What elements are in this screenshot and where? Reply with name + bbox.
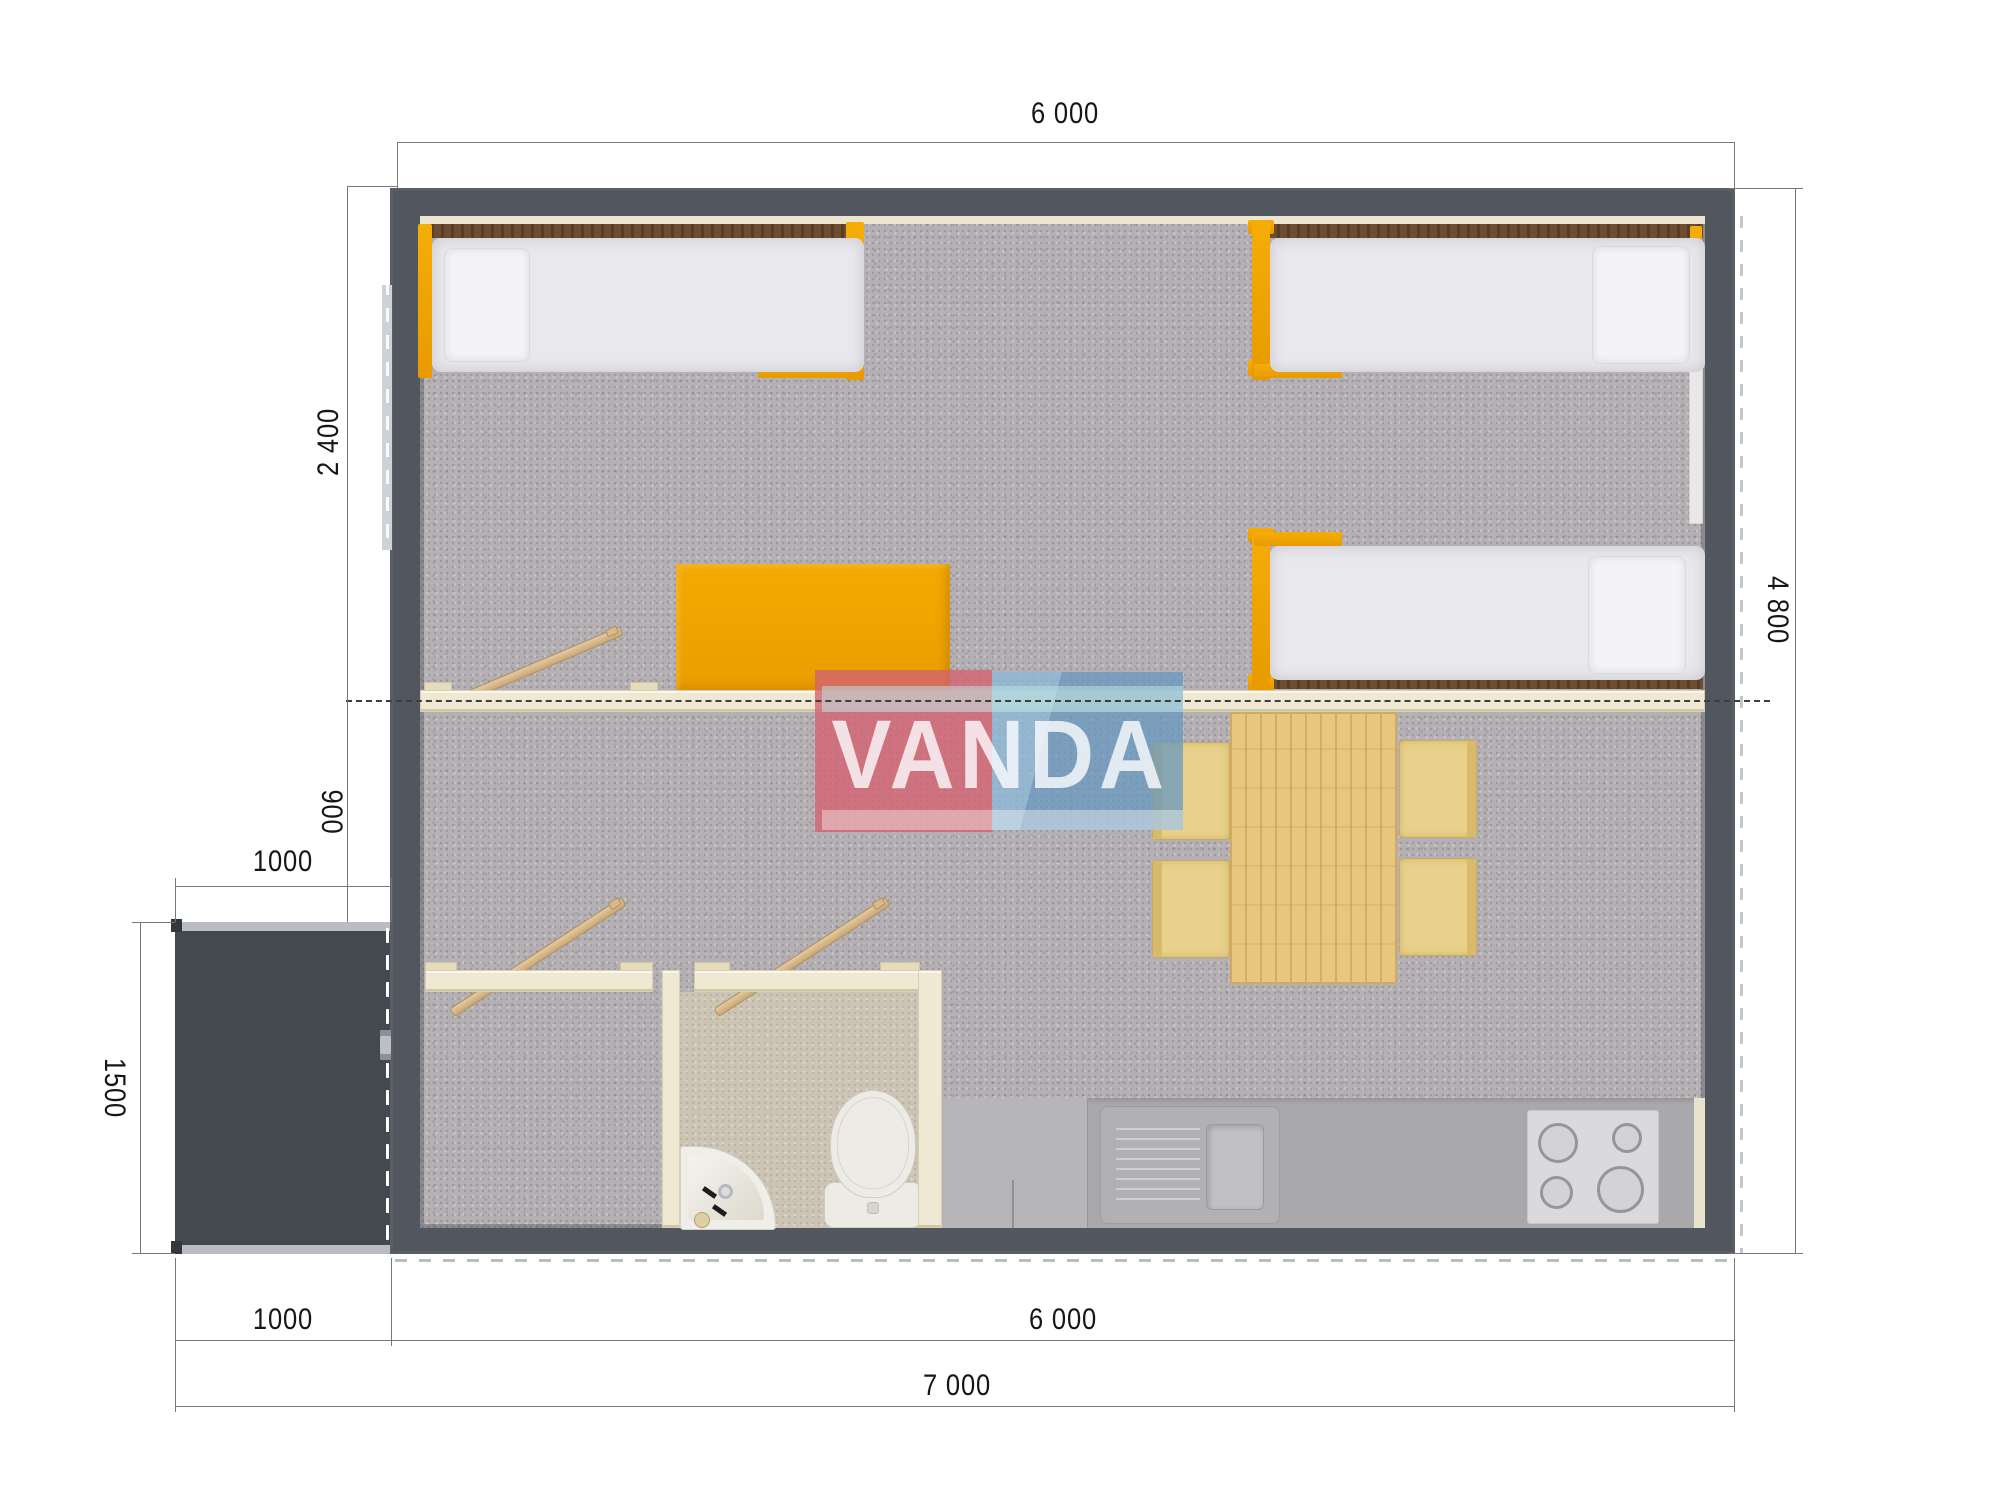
drainboard-line [1116,1198,1200,1200]
watermark: VANDA [815,668,1185,834]
dimension-extension [1734,1258,1735,1412]
stove-burner [1612,1123,1642,1153]
cladding-dashes-right [1740,216,1743,1254]
toilet-button [867,1202,879,1214]
dimension-line [175,1340,1735,1341]
dimension-extension [391,1258,392,1346]
floor-plan: VANDA 6 000 2 400 900 1000 1500 4 800 10… [0,0,2000,1502]
dimension-line [397,142,1735,143]
drainboard-line [1116,1168,1200,1170]
bathroom-front-wall [694,970,920,992]
dimension-extension [1734,142,1735,188]
wall-trim [420,216,1705,224]
chair [1152,860,1230,958]
pillow [1588,556,1686,674]
bed-frame-rail [1252,222,1270,380]
dining-table [1230,712,1397,984]
kitchen-cabinet [942,1098,1088,1228]
watermark-ribbon-bottom [822,810,1183,830]
dimension-line [1795,188,1796,1254]
porch-post [171,919,182,932]
dimension-line [175,886,392,887]
faucet-icon [718,1184,733,1199]
bathroom-right-wall [918,970,942,1228]
cabinet-divider [1012,1180,1014,1228]
door-handle [380,1030,391,1060]
stove-burner [1538,1123,1578,1163]
porch-step-top [175,922,390,931]
dimension-extension [175,1258,176,1412]
stove-burner [1540,1176,1573,1209]
dim-top-width: 6 000 [1031,97,1099,131]
dimension-extension [397,142,398,188]
sink-basin [1206,1124,1264,1210]
stove-burner [1597,1166,1644,1213]
dimension-extension [175,878,176,922]
section-reference-dashed-line [346,700,1770,702]
dimension-extension [132,922,175,923]
entrance-door-line [386,928,389,1248]
pillow [1592,246,1690,364]
watermark-text: VANDA [828,706,1172,803]
dim-bedroom-depth: 2 400 [312,408,346,476]
dim-porch-width: 1000 [253,845,313,879]
dimension-line [347,186,348,700]
chair-backrest [1467,741,1476,837]
drainboard-line [1116,1138,1200,1140]
bed-frame-rail [1254,532,1342,546]
toilet-seat-line [837,1097,909,1189]
pillow [444,248,530,362]
bed-frame-rail [418,224,432,378]
chair-backrest [1467,859,1476,955]
chair [1399,740,1477,838]
dim-hallway-depth: 900 [314,789,348,834]
dimension-extension [391,878,392,922]
window-right [1689,352,1703,524]
dim-house-depth: 4 800 [1760,576,1794,644]
drainboard-line [1116,1188,1200,1190]
chair [1399,858,1477,956]
drainboard-line [1116,1178,1200,1180]
bathroom-divider-wall [662,970,680,1228]
cladding-dashes-bottom [395,1259,1730,1262]
dim-bottom-porch-width: 1000 [253,1303,313,1337]
drainboard-line [1116,1148,1200,1150]
porch-step-bottom [175,1245,390,1254]
dimension-extension [1729,188,1803,189]
dim-total-width: 7 000 [923,1369,991,1403]
dimension-line [140,922,141,1254]
counter-edge [1694,1098,1705,1228]
entrance-porch [175,922,390,1254]
bed-frame-rail [1252,532,1270,690]
headboard-shelf [424,224,862,238]
dimension-extension [347,186,397,187]
dimension-extension [1729,1253,1803,1254]
drainboard-line [1116,1158,1200,1160]
wardrobe-front-wall [425,970,653,992]
dimension-extension [132,1253,175,1254]
dim-bottom-house-width: 6 000 [1029,1303,1097,1337]
chair-backrest [1153,861,1162,957]
dim-porch-depth: 1500 [97,1058,131,1118]
drainboard-line [1116,1128,1200,1130]
headboard-shelf [1260,224,1703,238]
dimension-line [175,1406,1735,1407]
soap-cup [694,1212,710,1228]
